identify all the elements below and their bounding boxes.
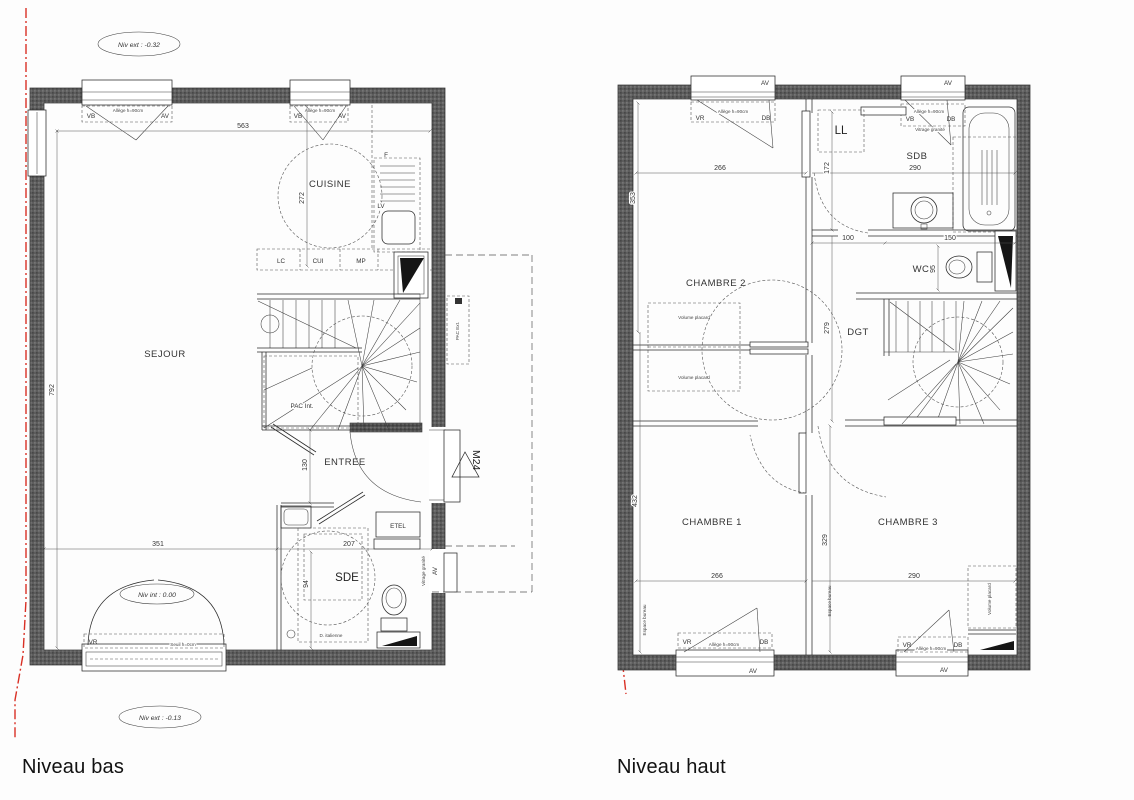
svg-text:VR: VR (89, 639, 98, 646)
svg-text:WC: WC (913, 264, 930, 275)
svg-text:AV: AV (944, 80, 953, 87)
svg-text:DB: DB (762, 115, 771, 122)
svg-text:AV: AV (749, 668, 758, 675)
svg-text:LC: LC (277, 258, 286, 265)
svg-text:CUI: CUI (313, 258, 324, 265)
svg-text:279: 279 (824, 322, 831, 334)
svg-text:100: 100 (842, 235, 854, 242)
svg-text:AV: AV (432, 566, 439, 575)
exterior-walls-bas (30, 88, 445, 665)
svg-text:AV: AV (761, 80, 770, 87)
plan-niveau-bas: Niv ext : -0.32 VB AV Allège h=90cm VB A… (15, 8, 532, 738)
svg-text:LL: LL (835, 125, 848, 137)
svg-text:DB: DB (947, 116, 956, 123)
window-bottom-left-haut: AV VR DB Allège h=90cm (676, 608, 774, 676)
svg-text:D. italienne: D. italienne (320, 633, 343, 638)
svg-text:Allège h=90cm: Allège h=90cm (916, 646, 947, 651)
svg-text:792: 792 (49, 384, 56, 396)
svg-text:SDB: SDB (906, 151, 927, 162)
room-label-sejour: SEJOUR (144, 349, 186, 360)
svg-text:290: 290 (908, 573, 920, 580)
svg-text:VB: VB (294, 113, 302, 120)
svg-text:Volume placard: Volume placard (987, 583, 992, 615)
svg-text:DB: DB (954, 642, 963, 649)
svg-text:351: 351 (152, 541, 164, 548)
svg-text:PAC Ext.: PAC Ext. (455, 322, 460, 340)
plan-niveau-haut: AV VR DB Allège h=90cm AV VB DB Allège h… (618, 76, 1030, 694)
ll-appliance: LL (818, 110, 864, 152)
svg-text:Niv ext : -0.13: Niv ext : -0.13 (139, 715, 181, 722)
svg-text:Allège h=90cm: Allège h=90cm (113, 108, 144, 113)
svg-text:VB: VB (906, 116, 914, 123)
placard-chambre3: Volume placard (968, 566, 1016, 650)
window-bottom-right-haut: AV VR DB Allège h=90cm (896, 610, 968, 676)
svg-text:DB: DB (760, 639, 769, 646)
svg-text:MP: MP (356, 258, 365, 265)
svg-text:Allège h=90cm: Allège h=90cm (718, 109, 749, 114)
svg-text:329: 329 (822, 534, 829, 546)
svg-text:ETEL: ETEL (390, 523, 406, 530)
svg-text:Vitrage granité: Vitrage granité (421, 556, 426, 586)
svg-text:353: 353 (630, 192, 637, 204)
window-left-bas (28, 110, 46, 176)
svg-text:563: 563 (237, 123, 249, 130)
svg-text:VR: VR (696, 115, 705, 122)
level-marker-int: Niv int : 0.00 (120, 584, 194, 604)
placards-chambre2: Volume placard Volume placard (648, 303, 740, 391)
svg-text:Volume placard: Volume placard (678, 315, 710, 320)
svg-text:266: 266 (711, 573, 723, 580)
level-marker-ext-top: Niv ext : -0.32 (98, 32, 180, 56)
floorplan-drawing: Niv ext : -0.32 VB AV Allège h=90cm VB A… (0, 0, 1134, 760)
kitchen-area: F LV LC CUI MP CUISINE (257, 105, 432, 298)
svg-text:150: 150 (944, 235, 956, 242)
svg-text:266: 266 (714, 165, 726, 172)
svg-text:Niv int : 0.00: Niv int : 0.00 (138, 592, 176, 599)
window-top-right-haut: AV VB DB Allège h=90cm Vitrage granité (901, 76, 965, 145)
svg-text:94: 94 (303, 580, 310, 588)
plan-title-niveau-haut: Niveau haut (617, 756, 726, 779)
window-top-left-haut: AV VR DB Allège h=90cm (691, 76, 775, 148)
plan-title-niveau-bas: Niveau bas (22, 756, 124, 779)
axis-line-red-left (15, 8, 26, 738)
svg-text:Allège h=90cm: Allège h=90cm (709, 642, 740, 647)
svg-text:290: 290 (909, 165, 921, 172)
room-label-chambre2: CHAMBRE 2 (686, 278, 746, 289)
svg-text:Volume placard: Volume placard (678, 375, 710, 380)
svg-text:Niv ext : -0.32: Niv ext : -0.32 (118, 42, 160, 49)
svg-text:CUISINE: CUISINE (309, 179, 351, 190)
svg-text:272: 272 (299, 192, 306, 204)
sde-room: D. italienne ETEL SDE (277, 492, 420, 650)
svg-text:Allège h=90cm: Allège h=90cm (305, 108, 336, 113)
svg-text:LV: LV (377, 203, 385, 210)
svg-text:PAC Int.: PAC Int. (291, 403, 314, 410)
room-label-chambre3: CHAMBRE 3 (878, 517, 938, 528)
entrance-door-bas (350, 423, 460, 503)
window-sde-side-bas: AV Vitrage granité (421, 549, 457, 593)
svg-text:207: 207 (343, 541, 355, 548)
svg-text:95: 95 (930, 265, 937, 273)
floorplan-sheet: Niv ext : -0.32 VB AV Allège h=90cm VB A… (0, 0, 1134, 800)
svg-text:130: 130 (302, 459, 309, 471)
svg-text:AV: AV (161, 113, 170, 120)
room-label-chambre1: CHAMBRE 1 (682, 517, 742, 528)
svg-text:ENTREE: ENTREE (324, 457, 366, 468)
svg-text:SDE: SDE (335, 572, 359, 584)
svg-text:172: 172 (824, 162, 831, 174)
door-code-label: M24 (470, 450, 482, 471)
wc-room: WC (913, 231, 1016, 291)
espace-bureau-ch3: Espace bureau (827, 585, 832, 616)
svg-text:Seuil h=0cm: Seuil h=0cm (170, 642, 196, 647)
espace-bureau-ch1: Espace bureau (642, 604, 647, 635)
svg-text:AV: AV (338, 113, 347, 120)
svg-text:Allège h=90cm: Allège h=90cm (914, 109, 945, 114)
staircase-bas (257, 294, 420, 430)
svg-text:VB: VB (87, 113, 95, 120)
pac-interieur: PAC Int. (264, 356, 358, 428)
svg-text:Vitrage granité: Vitrage granité (915, 127, 945, 132)
staircase-haut (818, 293, 1017, 497)
svg-text:VR: VR (683, 639, 692, 646)
svg-text:432: 432 (632, 495, 639, 507)
svg-text:F: F (384, 152, 388, 159)
room-label-dgt: DGT (847, 327, 869, 338)
svg-text:AV: AV (940, 667, 949, 674)
exterior-annotations-bas: PAC Ext. M24 (432, 255, 532, 592)
level-marker-ext-bottom: Niv ext : -0.13 (119, 706, 201, 728)
svg-text:VR: VR (903, 642, 912, 649)
